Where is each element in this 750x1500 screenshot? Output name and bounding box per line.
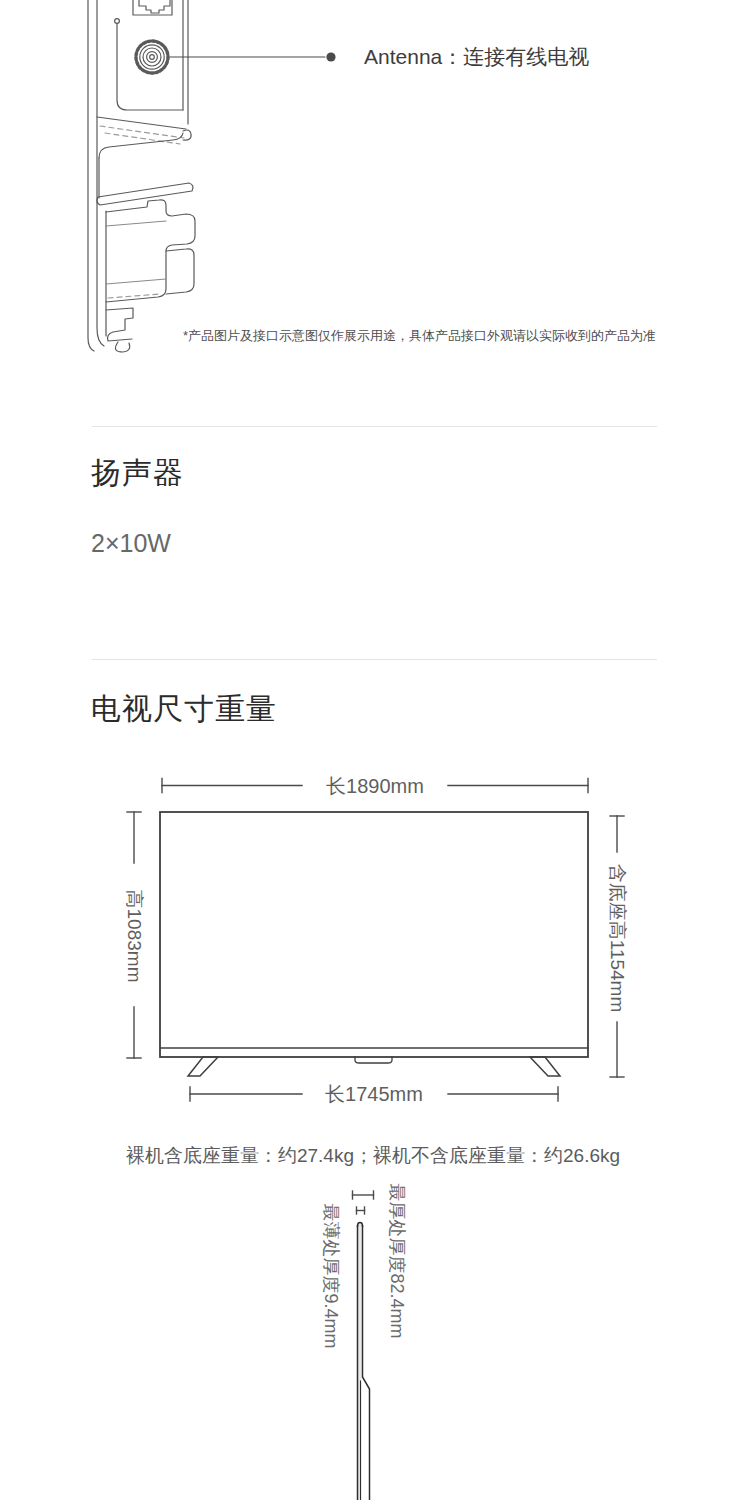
thickest-thickness-label: 最厚处厚度82.4mm	[385, 1183, 409, 1338]
speaker-spec-value: 2×10W	[91, 528, 171, 558]
antenna-callout-label: Antenna：连接有线电视	[364, 44, 589, 70]
tv-dimensions-diagram	[100, 760, 640, 1105]
thinnest-thickness-label: 最薄处厚度9.4mm	[319, 1203, 343, 1348]
product-spec-page: Antenna：连接有线电视 *产品图片及接口示意图仅作展示用途，具体产品接口外…	[0, 0, 750, 1500]
size-weight-section-title: 电视尺寸重量	[91, 691, 277, 727]
callout-dot	[326, 52, 335, 61]
stand-width-dimension-label: 长1745mm	[325, 1081, 423, 1108]
speaker-section-title: 扬声器	[91, 455, 184, 491]
height-with-stand-dimension-label: 含底座高1154mm	[604, 864, 630, 1013]
width-dimension-label: 长1890mm	[326, 773, 424, 800]
ethernet-port-icon	[133, 0, 172, 15]
ports-disclaimer-note: *产品图片及接口示意图仅作展示用途，具体产品接口外观请以实际收到的产品为准	[183, 327, 656, 344]
section-divider	[92, 659, 657, 660]
antenna-coax-port-icon	[136, 41, 168, 73]
weight-note: 裸机含底座重量：约27.4kg；裸机不含底座重量：约26.6kg	[126, 1143, 620, 1169]
section-divider	[92, 426, 657, 427]
height-dimension-label: 高1083mm	[121, 890, 147, 983]
